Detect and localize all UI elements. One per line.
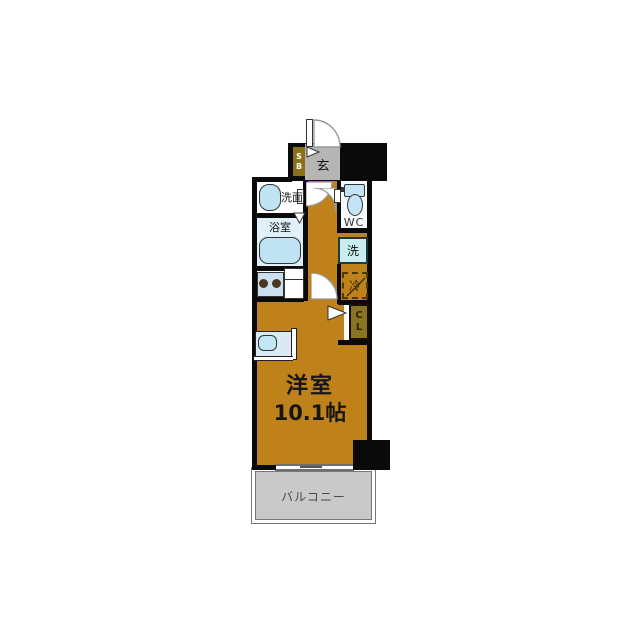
shoe-box-label-2: B (296, 162, 302, 172)
closet-door-marker (327, 305, 347, 321)
bed-base-lines (254, 356, 293, 361)
wall-left (252, 177, 257, 470)
floor-plan: バルコニー S B 玄 (0, 0, 640, 640)
bathroom-door-marker (293, 212, 306, 224)
balcony-floor: バルコニー (255, 471, 372, 520)
stove-burner-right (272, 279, 281, 288)
balcony-outer-border: バルコニー (251, 467, 376, 524)
entry-door-leaf (306, 119, 313, 147)
balcony-window-overlap-mark (300, 466, 322, 468)
wall-wc-bottom (337, 228, 371, 233)
bed-pillow (258, 335, 277, 351)
wall-bottom-left (252, 465, 276, 470)
toilet-handle (341, 187, 345, 192)
main-room-door-arc (311, 273, 338, 300)
main-room-size-label: 10.1帖 (262, 399, 358, 425)
shoe-box: S B (293, 147, 305, 176)
bathtub-symbol (259, 237, 301, 264)
shoe-box-label-1: S (296, 152, 302, 162)
main-room-label: 洋室 (270, 371, 350, 397)
laundry-box: 洗 (338, 237, 368, 264)
wc-door-leaf (334, 189, 341, 203)
washroom-label: 洗面 (278, 190, 306, 204)
wall-top-left (252, 177, 292, 182)
kitchen-counter (284, 268, 304, 299)
closet-box: C L (349, 304, 369, 340)
closet-label-2: L (356, 322, 362, 335)
stove-burner-left (259, 279, 268, 288)
wall-closet-bottom (338, 340, 371, 345)
toilet-bowl (347, 194, 363, 216)
fridge-box: 冷 (342, 272, 368, 299)
fridge-slash-mark (344, 274, 368, 299)
wall-block-bottom-right (353, 440, 390, 470)
wc-label: WC (341, 216, 367, 228)
entry-door-arc (313, 119, 341, 148)
balcony-label: バルコニー (256, 488, 371, 504)
closet-label-1: C (355, 310, 362, 323)
